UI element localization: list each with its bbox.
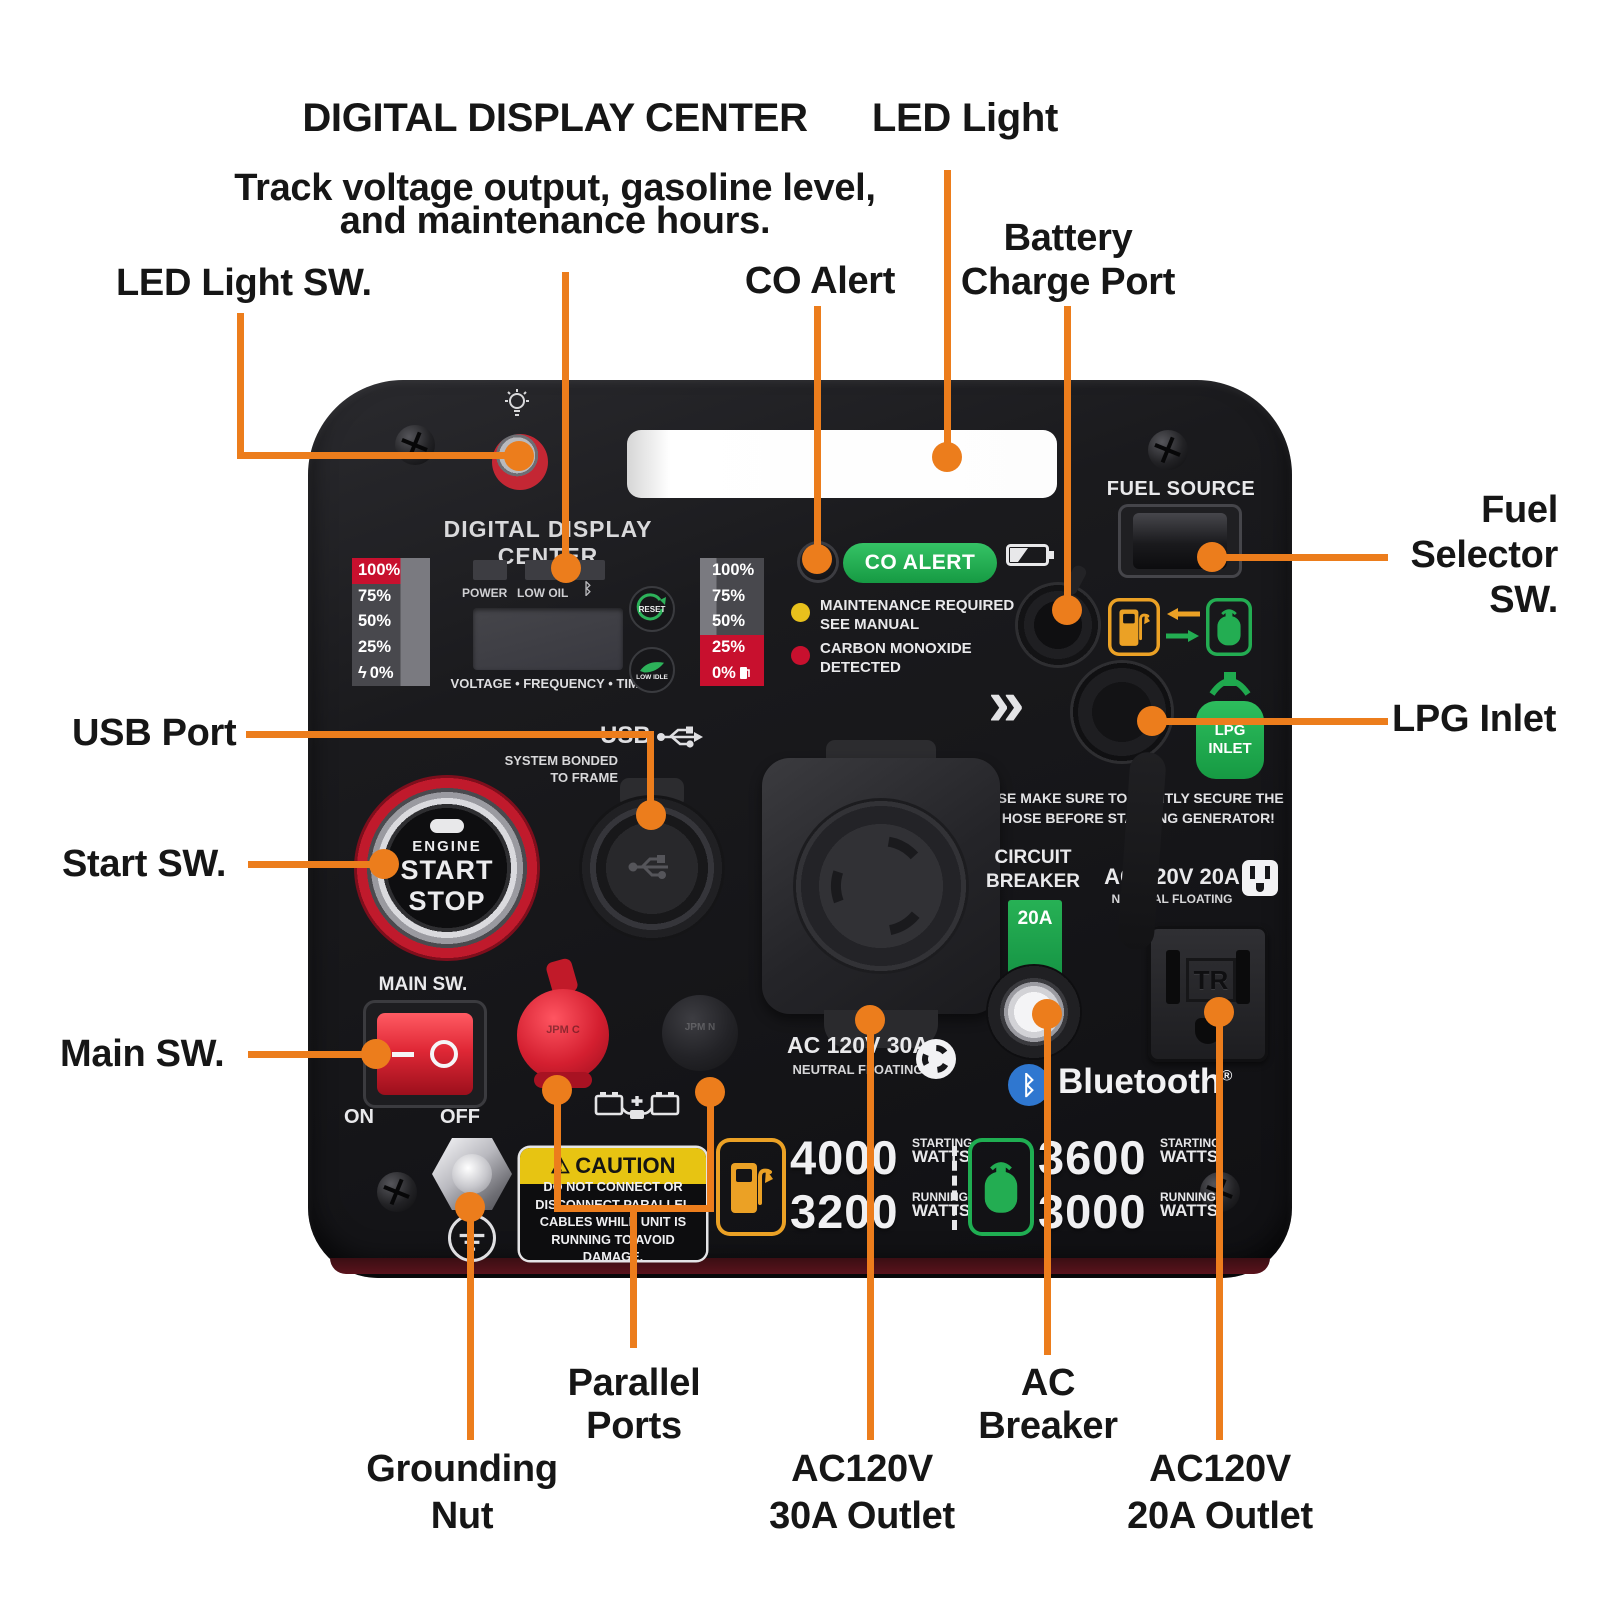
- low-oil-indicator-label: LOW OIL: [517, 586, 568, 600]
- callout-dot-fuel-selector: [1197, 542, 1227, 572]
- bluetooth-wordmark: Bluetooth®: [1058, 1062, 1232, 1102]
- callout-ac30-outlet: AC120V 30A Outlet: [752, 1446, 972, 1540]
- callout-led-light: LED Light: [850, 96, 1080, 142]
- power-indicator-label: POWER: [462, 586, 507, 600]
- led-light-bar: [627, 430, 1057, 498]
- fuel-pump-icon: [739, 665, 751, 681]
- callout-line-led-light: [944, 170, 951, 458]
- callout-dot-led-sw: [504, 441, 534, 471]
- fuel-gauge-right: 100% 75% 50% 25% 0%: [700, 558, 764, 686]
- on-mark: [392, 1052, 414, 1057]
- callout-start-sw: Start SW.: [62, 843, 226, 886]
- callout-line-parallel-stem: [630, 1205, 637, 1348]
- callout-digital-display-title: DIGITAL DISPLAY CENTER: [230, 96, 880, 142]
- screw-bottom-left-icon: [377, 1172, 417, 1212]
- callout-main-sw: Main SW.: [60, 1033, 224, 1076]
- usb-glyph-icon: [628, 852, 676, 882]
- callout-dot-breaker: [1032, 999, 1062, 1029]
- lpg-tank-icon: [1206, 598, 1252, 656]
- callout-dot-digital-display: [551, 553, 581, 583]
- gauge-row: 75%: [352, 584, 430, 610]
- fuel-swap-arrows-icon: [1162, 602, 1204, 652]
- usb-note: SYSTEM BONDED TO FRAME: [498, 752, 618, 786]
- fuel-gauge-left: 100% 75% 50% 25% ϟ0%: [352, 558, 430, 686]
- battery-icon: [1006, 541, 1056, 569]
- specs-divider: [952, 1146, 957, 1230]
- outlet-slot-right: [1236, 950, 1250, 1004]
- start-button-indicator: [430, 819, 464, 833]
- low-idle-button: LOW IDLE: [629, 647, 675, 693]
- lpg-starting-caption: STARTING WATTS: [1160, 1136, 1220, 1164]
- callout-line-parallel-left: [554, 1090, 561, 1212]
- maintenance-text: MAINTENANCE REQUIRED SEE MANUAL: [820, 596, 1014, 634]
- usb-trident-icon: [656, 724, 704, 750]
- callout-line-usb-h: [246, 731, 654, 738]
- ac20-outlet: TR: [1148, 926, 1268, 1062]
- lpg-spec-icon: [968, 1138, 1034, 1236]
- outlet-icon: [1240, 858, 1280, 898]
- gauge-row: 100%: [352, 558, 430, 584]
- screen-caption: VOLTAGE • FREQUENCY • TIME: [438, 676, 660, 691]
- bolt-icon: ϟ: [358, 664, 367, 683]
- light-bulb-icon: [501, 388, 533, 422]
- gas-starting-caption: STARTING WATTS: [912, 1136, 972, 1164]
- ac20-label: AC 120V 20A: [1088, 864, 1256, 890]
- gas-starting-watts: 4000: [790, 1130, 899, 1185]
- callout-dot-ac30: [855, 1005, 885, 1035]
- callout-line-co-alert: [814, 306, 821, 558]
- circuit-breaker-label: CIRCUIT BREAKER: [958, 846, 1108, 894]
- callout-dot-ac20: [1204, 997, 1234, 1027]
- maintenance-led-dot: [791, 603, 810, 622]
- gauge-row: 100%: [700, 558, 764, 584]
- leaf-icon: [637, 659, 667, 674]
- callout-digital-display-subtitle: Track voltage output, gasoline level, an…: [230, 172, 880, 238]
- gauge-row: ϟ0%: [352, 660, 430, 686]
- callout-line-ac20: [1216, 1010, 1223, 1440]
- callout-line-battery: [1064, 306, 1071, 610]
- callout-dot-grounding: [455, 1192, 485, 1222]
- outlet-slot-left: [1166, 950, 1180, 1004]
- generator-annotated-diagram: FUEL SOURCE DIGITAL DISPLAY CENTER 100% …: [0, 0, 1600, 1600]
- callout-line-grounding: [467, 1207, 474, 1440]
- callout-line-lpg-inlet: [1150, 718, 1388, 725]
- callout-dot-parallel-red: [542, 1075, 572, 1105]
- reset-button: RESET: [629, 586, 675, 632]
- screw-top-left-icon: [395, 425, 435, 465]
- lpg-badge-handles: [1194, 664, 1266, 700]
- off-mark: [430, 1040, 458, 1068]
- co-alert-badge: CO ALERT: [843, 543, 997, 583]
- callout-parallel-ports: Parallel Ports: [524, 1362, 744, 1448]
- callout-line-led-sw-h: [237, 452, 519, 459]
- callout-battery-charge-port: Battery Charge Port: [953, 216, 1183, 304]
- main-rocker: [377, 1013, 473, 1095]
- chevrons-icon: »: [988, 664, 1019, 740]
- gauge-row: 0%: [700, 660, 764, 686]
- power-indicator-window: [473, 560, 507, 580]
- callout-dot-start-sw: [369, 849, 399, 879]
- callout-dot-usb: [636, 800, 666, 830]
- gauge-row: 50%: [700, 609, 764, 635]
- black-cap-text: JPM N: [672, 1022, 728, 1033]
- outlet-tr-mark: TR: [1186, 958, 1236, 1002]
- twist-lock-icon: [914, 1037, 958, 1081]
- lpg-starting-watts: 3600: [1038, 1130, 1147, 1185]
- co-detected-text: CARBON MONOXIDE DETECTED: [820, 639, 972, 677]
- callout-line-main-sw: [248, 1051, 376, 1058]
- grounding-nut-dome: [452, 1154, 492, 1194]
- callout-dot-led-light: [932, 442, 962, 472]
- callout-dot-parallel-black: [695, 1077, 725, 1107]
- callout-line-start-sw: [248, 861, 384, 868]
- callout-line-ac30: [867, 1020, 874, 1440]
- caution-body: DO NOT CONNECT OR DISCONNECT PARALLEL CA…: [520, 1184, 706, 1260]
- red-cap-text: JPM C: [532, 1024, 594, 1036]
- lpg-badge-body: LPG INLET: [1196, 701, 1264, 779]
- gauge-row: 50%: [352, 609, 430, 635]
- parallel-port-black-cap: [662, 995, 738, 1071]
- callout-usb-port: USB Port: [72, 712, 236, 755]
- callout-lpg-inlet: LPG Inlet: [1392, 698, 1556, 741]
- fuel-source-label: FUEL SOURCE: [1100, 478, 1262, 501]
- ac30-slot-arcs: [793, 798, 969, 974]
- ac20-sub-label: NEUTRAL FLOATING: [1088, 892, 1256, 906]
- lpg-warning-text: PLEASE MAKE SURE TO TIGHTLY SECURE THE L…: [950, 788, 1294, 828]
- callout-dot-lpg-inlet: [1137, 706, 1167, 736]
- lpg-running-watts: 3000: [1038, 1184, 1147, 1239]
- off-label: OFF: [440, 1106, 480, 1129]
- callout-dot-co-alert: [802, 544, 832, 574]
- gasoline-spec-icon: [716, 1138, 786, 1236]
- callout-line-breaker: [1044, 1012, 1051, 1355]
- fuel-source-switch: [1118, 504, 1242, 578]
- callout-co-alert: CO Alert: [726, 260, 914, 303]
- gauge-row: 75%: [700, 584, 764, 610]
- callout-led-light-sw: LED Light SW.: [116, 262, 372, 305]
- callout-fuel-selector-sw: Fuel Selector SW.: [1330, 488, 1558, 623]
- gasoline-pump-icon: [1108, 598, 1160, 656]
- on-label: ON: [344, 1106, 374, 1129]
- low-idle-label: LOW IDLE: [636, 674, 668, 681]
- lcd-screen: [473, 608, 623, 670]
- callout-line-parallel-right: [707, 1092, 714, 1212]
- callout-ac20-outlet: AC120V 20A Outlet: [1110, 1446, 1330, 1540]
- co-detected-led-dot: [791, 646, 810, 665]
- gas-running-watts: 3200: [790, 1184, 899, 1239]
- callout-line-digital-display: [562, 272, 569, 568]
- callout-dot-main-sw: [361, 1039, 391, 1069]
- screw-top-right-icon: [1148, 430, 1188, 470]
- callout-grounding-nut: Grounding Nut: [352, 1446, 572, 1540]
- parallel-batteries-icon: [594, 1086, 680, 1124]
- caution-label: ⚠ CAUTION DO NOT CONNECT OR DISCONNECT P…: [520, 1148, 706, 1260]
- gauge-row: 25%: [700, 635, 764, 661]
- bluetooth-indicator-icon: ᛒ: [583, 581, 593, 599]
- gas-running-caption: RUNNING WATTS: [912, 1190, 970, 1218]
- main-switch-label: MAIN SW.: [360, 974, 486, 996]
- reset-label: RESET: [639, 605, 666, 614]
- lpg-running-caption: RUNNING WATTS: [1160, 1190, 1218, 1218]
- gauge-row: 25%: [352, 635, 430, 661]
- battery-charge-port: [1015, 582, 1101, 668]
- callout-line-led-sw-v: [237, 313, 244, 459]
- callout-dot-battery: [1052, 595, 1082, 625]
- callout-ac-breaker: AC Breaker: [938, 1362, 1158, 1448]
